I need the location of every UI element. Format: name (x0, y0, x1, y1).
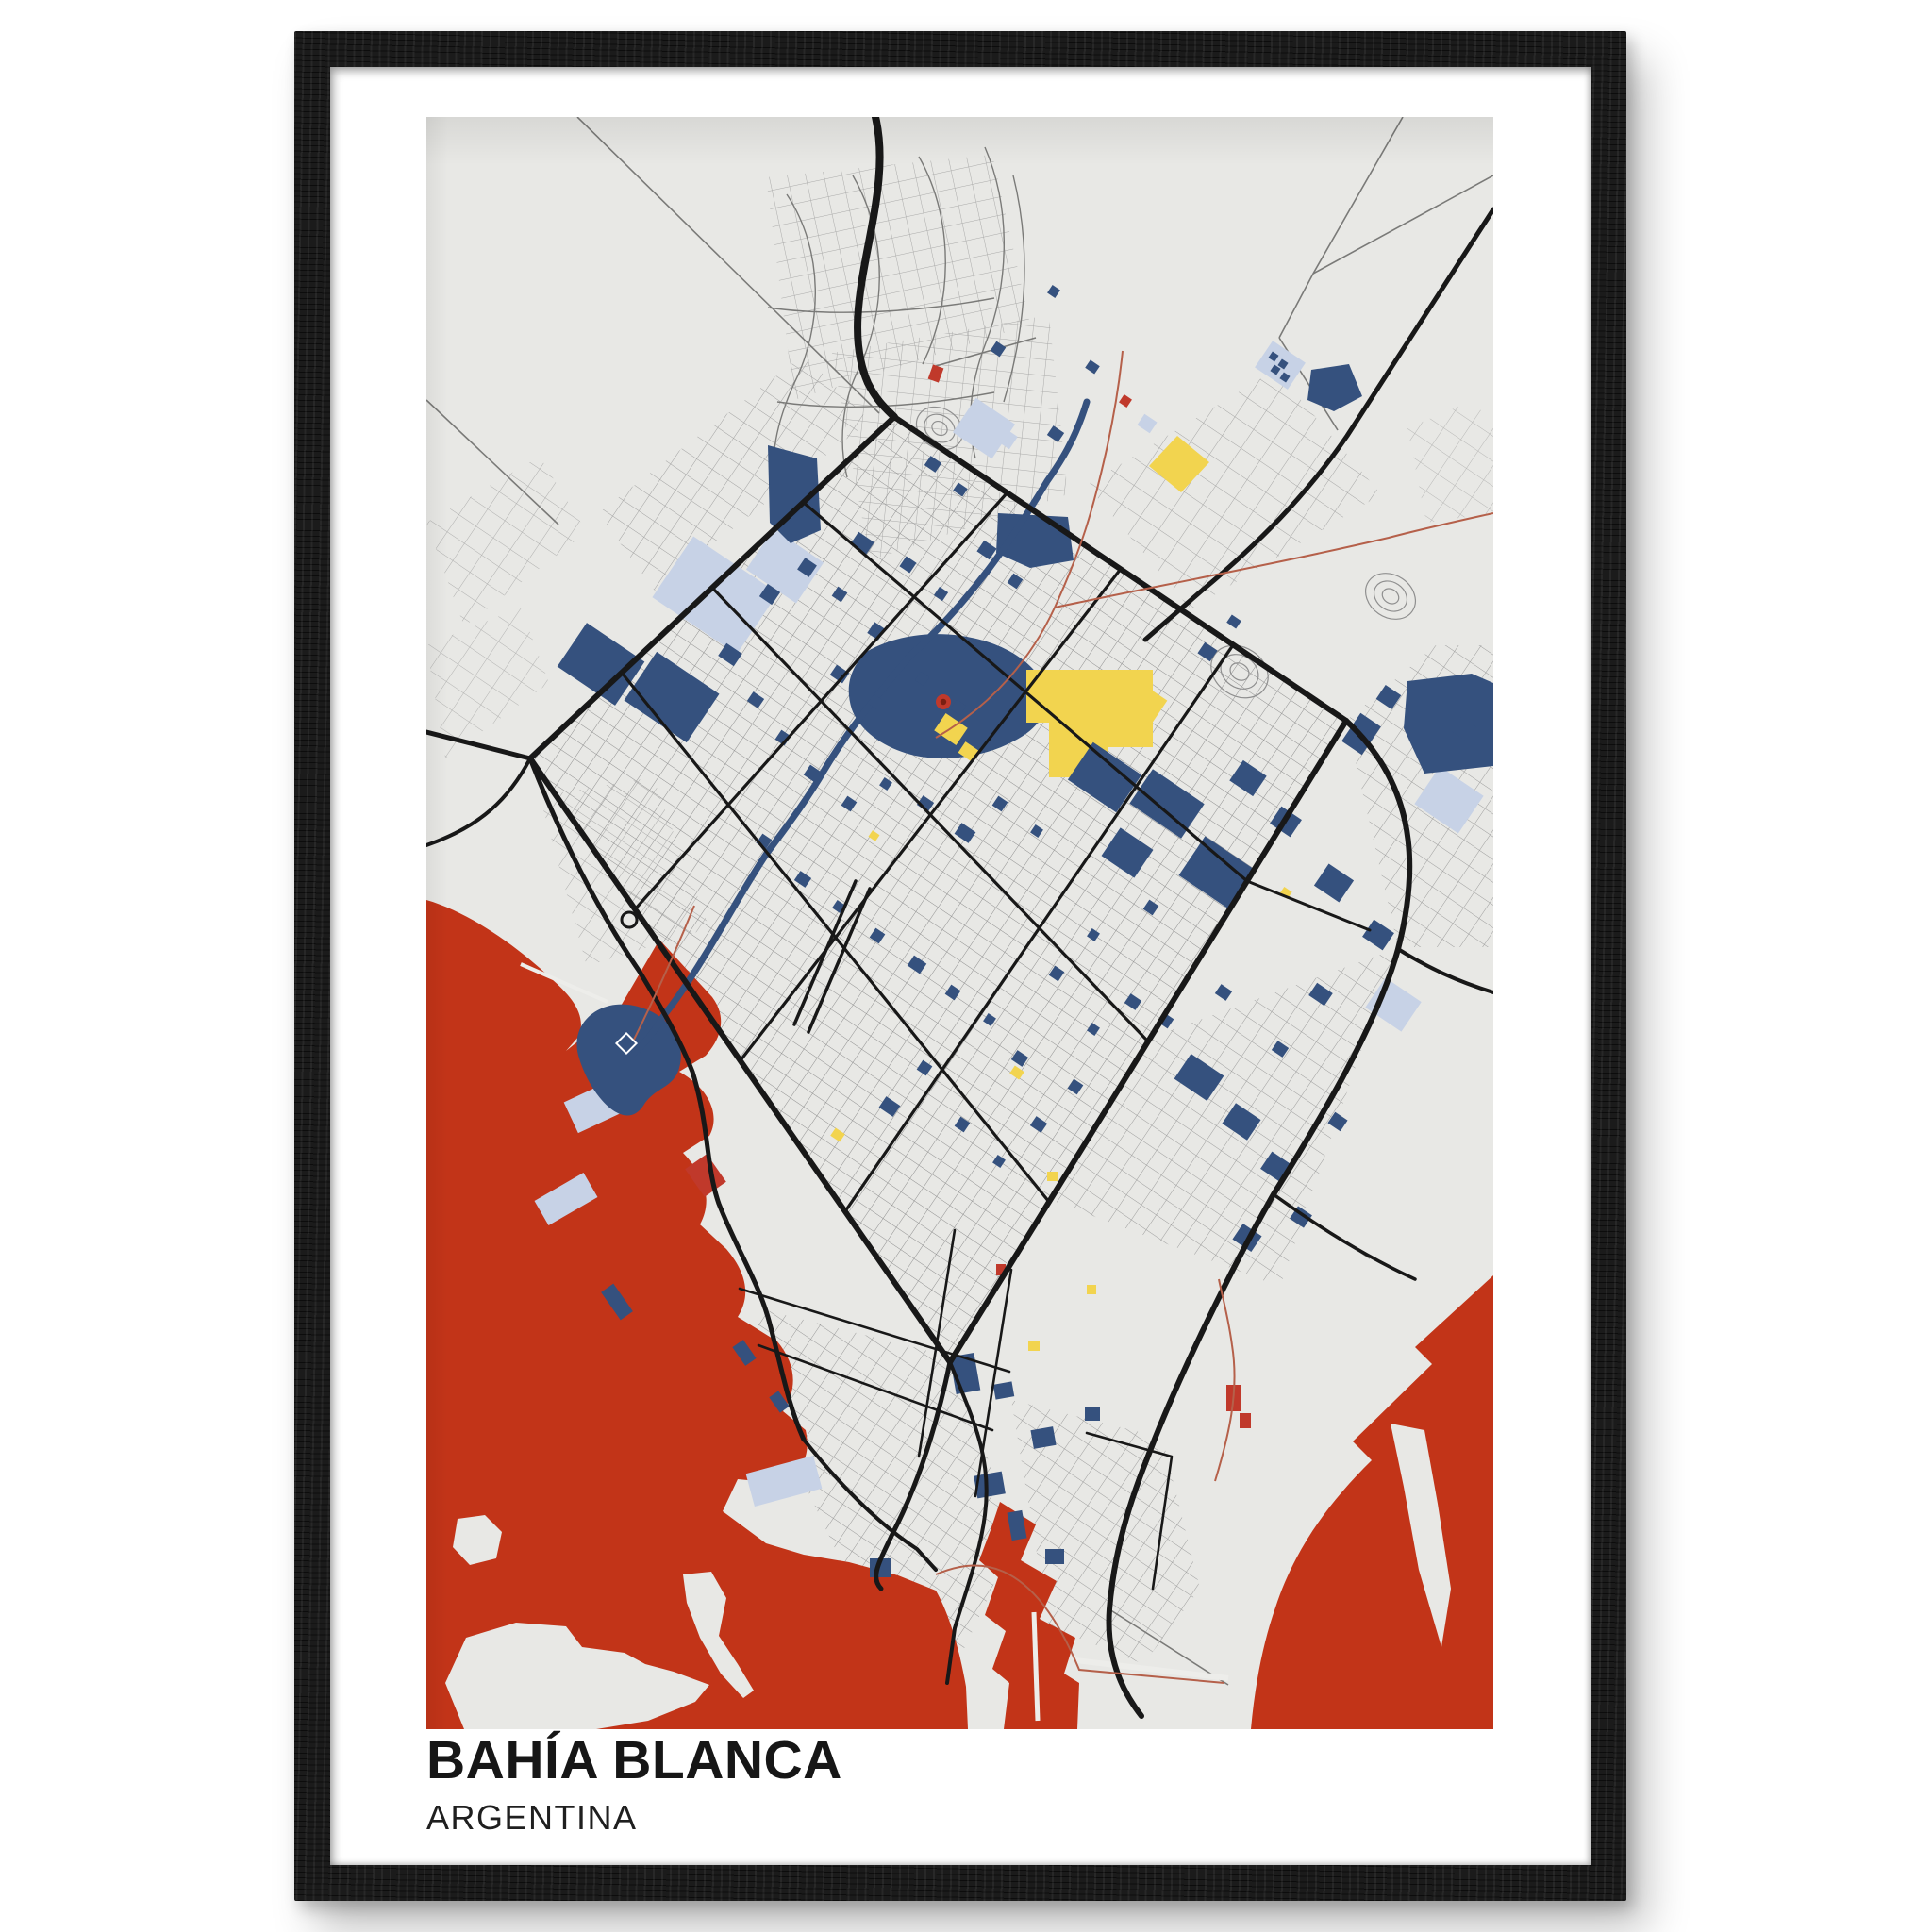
caption-block: BAHÍA BLANCA ARGENTINA (426, 1733, 842, 1838)
city-map (426, 117, 1493, 1729)
poster-photo: BAHÍA BLANCA ARGENTINA (0, 0, 1932, 1932)
map-area (426, 117, 1493, 1729)
poster-title: BAHÍA BLANCA (426, 1733, 842, 1790)
poster-frame: BAHÍA BLANCA ARGENTINA (294, 31, 1626, 1901)
poster-mat: BAHÍA BLANCA ARGENTINA (330, 67, 1591, 1865)
poster-subtitle: ARGENTINA (426, 1798, 842, 1838)
